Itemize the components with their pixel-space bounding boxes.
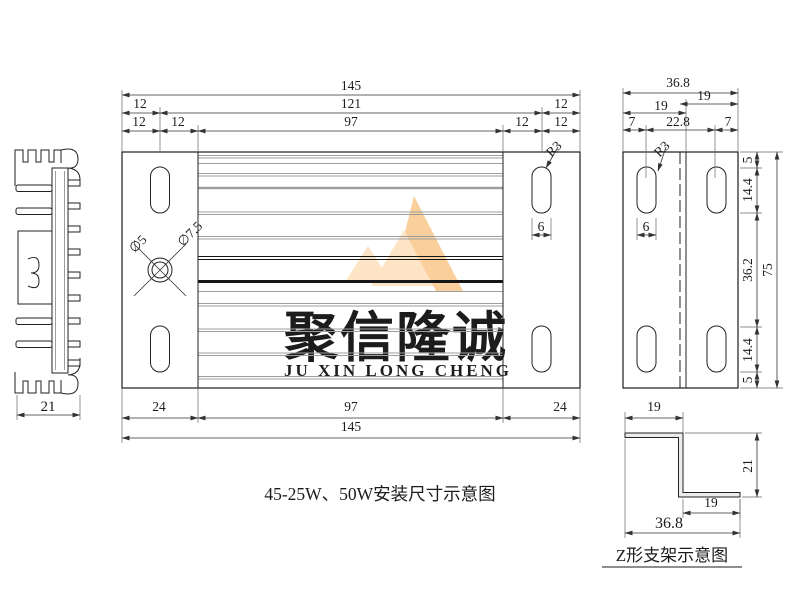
bracket-side-view [623,152,738,388]
dim-side-slot-width: 6 [643,219,650,234]
dim-z-height: 21 [740,459,755,473]
dim-hole-outer: ∅7.5 [174,218,205,249]
dim-plate-left-end: 24 [152,399,166,414]
dim-side-top-slot-offset: 14.4 [740,178,755,202]
dim-plate-left-edge: 12 [132,114,146,129]
drawing-svg: 聚信隆诚 JU XIN LONG CHENG [0,0,800,600]
plate-center-hole [134,244,186,296]
dim-plate-right-end: 24 [553,399,567,414]
dim-plate-slot-radius: R3 [543,138,565,160]
dim-z-bottom-flange: 19 [704,495,718,510]
bracket-mounting-slots [637,167,726,372]
dim-side-left-hole-offset: 7 [629,114,636,129]
heatsink-profile-view [15,149,80,394]
dim-side-right-flange: 19 [697,88,711,103]
dim-side-bottom-slot-offset: 14.4 [740,338,755,362]
dim-side-bottom-margin: 5 [740,376,755,383]
watermark-cn-text: 聚信隆诚 [283,308,508,368]
main-caption: 45-25W、50W安装尺寸示意图 [264,484,495,504]
dim-z-top-flange: 19 [647,399,661,414]
z-bracket-outline [625,433,740,497]
dim-plate-right-offset: 12 [554,96,568,111]
dim-side-top-margin: 5 [740,156,755,163]
dim-plate-left-offset: 12 [133,96,147,111]
dim-side-overall-width: 36.8 [666,75,690,90]
dim-z-overall-width: 36.8 [655,515,683,532]
dim-side-hole-span: 22.8 [666,114,690,129]
dim-profile-width: 21 [41,399,56,415]
z-bracket-view [625,433,740,497]
watermark-en-text: JU XIN LONG CHENG [284,361,512,380]
mounting-plate-top-view [122,152,580,388]
dim-plate-fin-span-bottom: 97 [344,399,358,414]
bracket-caption: Z形支架示意图 [616,546,728,565]
dim-plate-slot-span: 121 [341,96,361,111]
dim-side-right-hole-offset: 7 [725,114,732,129]
dim-plate-right-edge: 12 [554,114,568,129]
dim-side-left-flange: 19 [654,98,668,113]
dim-side-slot-radius: R3 [651,138,673,160]
dim-side-mid-span: 36.2 [740,258,755,282]
dim-plate-left-inner: 12 [171,114,185,129]
dim-plate-fin-span-top: 97 [344,114,358,129]
engineering-drawing-page: 聚信隆诚 JU XIN LONG CHENG [0,0,800,600]
dim-plate-right-inner: 12 [515,114,529,129]
dim-plate-slot-width: 6 [538,219,545,234]
watermark: 聚信隆诚 JU XIN LONG CHENG [283,196,512,380]
dim-plate-overall-width-bottom: 145 [341,419,362,434]
dim-side-overall-height: 75 [760,263,775,277]
dim-hole-inner: ∅5 [126,232,150,256]
dim-plate-overall-width-top: 145 [341,78,362,93]
